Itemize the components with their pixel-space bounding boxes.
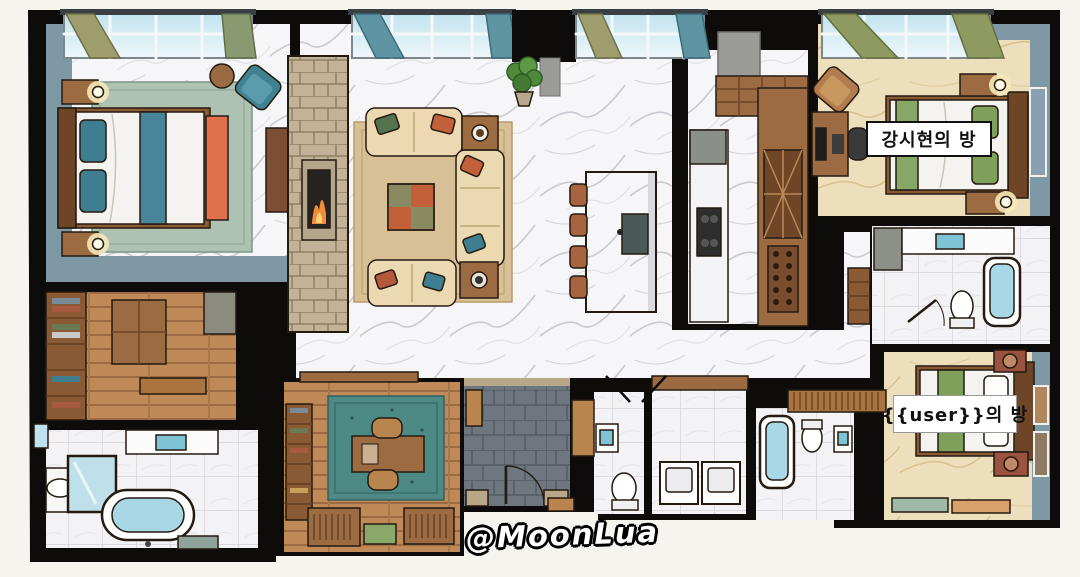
- bar-stool: [570, 214, 587, 236]
- tub-faucet: [145, 541, 151, 547]
- wall-art: [1030, 88, 1046, 176]
- toilet-tank: [950, 318, 974, 328]
- tub-water: [766, 422, 788, 480]
- lamp: [1003, 354, 1017, 368]
- master-window: [60, 9, 256, 58]
- desk-chair: [848, 128, 868, 160]
- toilet-tank: [612, 500, 638, 510]
- wall-cabinet: [266, 128, 290, 212]
- room-label-kang: 강시현의 방: [866, 121, 992, 157]
- hallway-floor: [296, 330, 844, 378]
- wall-art: [1034, 432, 1048, 476]
- shoe-cabinet: [572, 400, 594, 456]
- keyboard: [832, 134, 844, 154]
- tub-water: [112, 498, 184, 532]
- headboard: [1008, 92, 1028, 198]
- toilet: [951, 291, 973, 321]
- entry-cabinet: [466, 390, 482, 426]
- sink: [838, 432, 848, 445]
- lamp: [93, 87, 104, 98]
- toilet-tank: [802, 420, 822, 429]
- artist-watermark: @MoonLua: [465, 515, 659, 556]
- sink: [936, 234, 964, 249]
- bath-mat: [178, 536, 218, 549]
- lamp: [93, 239, 104, 250]
- bath-cabinet: [874, 228, 902, 270]
- kang-window: [818, 9, 1004, 58]
- bed-runner: [140, 112, 166, 224]
- monitor: [816, 128, 826, 160]
- room-label-user: {{user}}의 방: [893, 395, 1017, 433]
- floor-plan-stage: 강시현의 방 {{user}}의 방 @MoonLua: [0, 0, 1080, 577]
- study-chair: [368, 470, 398, 490]
- floor-mat: [892, 498, 948, 512]
- closet-bench: [140, 378, 206, 394]
- hall-console: [300, 372, 418, 382]
- stove: [697, 208, 721, 256]
- bar-stool: [570, 184, 587, 206]
- toilet: [612, 473, 636, 503]
- lamp: [1004, 457, 1018, 471]
- gray-panel: [540, 58, 560, 96]
- lamp: [1001, 197, 1012, 208]
- wall-art: [1034, 386, 1048, 424]
- green-mat: [364, 524, 396, 544]
- master-bedroom-wall-bottom: [46, 256, 290, 282]
- laundry-counter: [652, 376, 748, 390]
- entry-bench: [548, 498, 574, 511]
- wall-column: [512, 10, 576, 62]
- desk-paper: [362, 444, 378, 464]
- ottoman: [388, 184, 434, 230]
- bar-stool: [570, 246, 587, 268]
- living-window-2: [572, 9, 710, 58]
- range-hood: [690, 130, 726, 164]
- headboard: [58, 108, 76, 228]
- bookshelf: [788, 390, 886, 412]
- wine-bottles: [768, 246, 798, 312]
- pillow: [80, 170, 106, 212]
- study-chair: [372, 418, 402, 438]
- gray-column: [718, 32, 760, 78]
- low-bookcase: [308, 508, 360, 546]
- small-window: [34, 424, 48, 448]
- lamp: [995, 80, 1006, 91]
- floor-mat: [952, 500, 1010, 513]
- pillow: [80, 120, 106, 162]
- foot-bench: [206, 116, 228, 220]
- closet-cabinet: [204, 292, 236, 334]
- entry-threshold: [464, 378, 570, 386]
- washer-lid: [666, 468, 692, 492]
- island-faucet: [617, 229, 623, 235]
- tub-water: [990, 264, 1014, 318]
- bar-stool: [570, 276, 587, 298]
- island-sink: [622, 214, 648, 254]
- entry-step: [466, 490, 488, 506]
- sink: [156, 435, 186, 450]
- dryer-lid: [708, 468, 734, 492]
- living-window-1: [348, 9, 518, 58]
- floor-plan-drawing: [0, 0, 1080, 577]
- sink: [600, 430, 613, 445]
- side-stool: [210, 64, 234, 88]
- study-bookshelf: [286, 404, 312, 520]
